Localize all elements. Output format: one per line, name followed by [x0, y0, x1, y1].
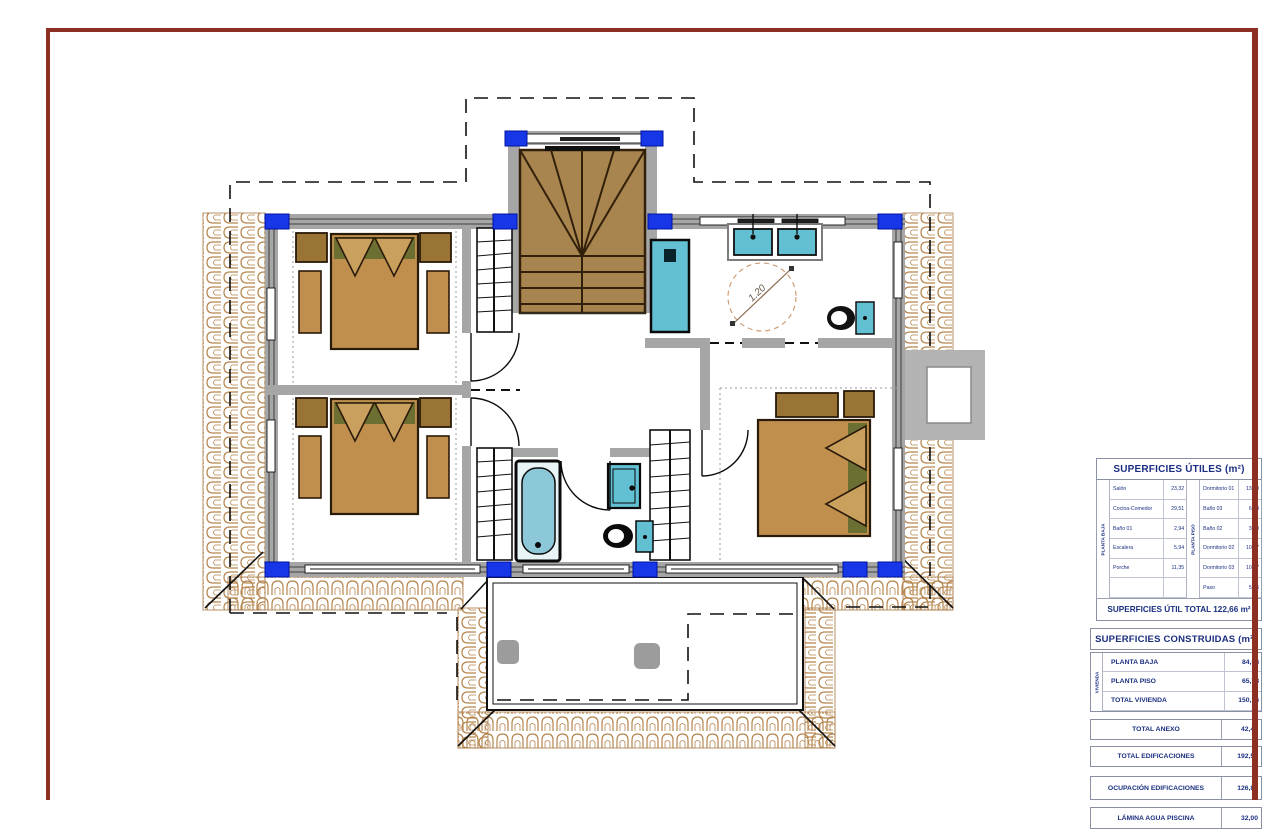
bed-dormitorio-01 [758, 391, 874, 536]
table-row: Baño 012,94 [1110, 519, 1186, 539]
construidas-title: SUPERFICIES CONSTRUIDAS (m²) [1090, 628, 1262, 650]
table-row: PLANTA PISO65,78 [1103, 672, 1261, 691]
superficies-utiles-table: SUPERFICIES ÚTILES (m²) PLANTA BAJA Saló… [1096, 458, 1262, 621]
staircase [520, 146, 645, 313]
table-row: OCUPACIÓN EDIFICACIONES 126,80 [1090, 776, 1262, 800]
page-frame-right [1252, 28, 1258, 800]
vivienda-label: VIVIENDA [1094, 671, 1099, 693]
table-row: PLANTA BAJA84,38 [1103, 653, 1261, 672]
terrace [487, 577, 803, 710]
chimney [905, 350, 985, 440]
terrace-pillar [497, 640, 519, 664]
table-row: TOTAL VIVIENDA150,16 [1103, 692, 1261, 711]
page-frame-left [46, 28, 50, 800]
terrace-pillar [634, 643, 660, 669]
bed-dormitorio-02 [296, 233, 451, 349]
utiles-title: SUPERFICIES ÚTILES (m²) [1096, 458, 1262, 480]
floor-plan: 1.20 [0, 0, 1280, 800]
bed-dormitorio-03 [296, 398, 451, 514]
table-row: LÁMINA AGUA PISCINA 32,00 [1090, 807, 1262, 829]
plan-sheet: { "sheet": { "frame_color": "#8e2f23" },… [0, 0, 1280, 800]
table-row: Escalera5,94 [1110, 539, 1186, 559]
superficies-construidas-table: SUPERFICIES CONSTRUIDAS (m²) VIVIENDA PL… [1090, 628, 1262, 829]
table-row [1110, 578, 1186, 598]
table-row: Salón23,32 [1110, 480, 1186, 500]
table-row: TOTAL ANEXO 42,42 [1090, 719, 1262, 740]
page-frame-top [46, 28, 1258, 32]
utiles-total: SUPERFICIES ÚTIL TOTAL 122,66 m² [1096, 599, 1262, 621]
table-row: Cocina-Comedor29,51 [1110, 500, 1186, 520]
bathroom-top: 1.20 [651, 214, 874, 334]
table-row: TOTAL EDIFICACIONES 192,58 [1090, 746, 1262, 767]
utiles-group-label: PLANTA PISO [1191, 524, 1196, 554]
bathroom-bottom [516, 461, 653, 561]
table-row: Porche11,35 [1110, 559, 1186, 579]
utiles-group-label: PLANTA BAJA [1101, 523, 1106, 555]
